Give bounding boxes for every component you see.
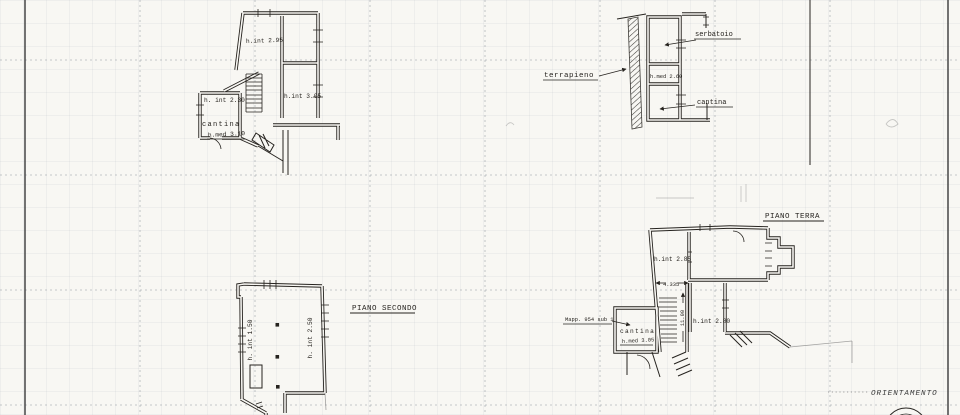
ground-exterior-steps [672, 331, 752, 376]
basement-plan: h.int 2.95 h.int 3.05 h. int 2.30 cantin… [196, 9, 340, 175]
basement-h-upper-label: h.int 2.95 [246, 37, 284, 45]
second-right-wall-extension [325, 393, 326, 410]
ground-depth-dim: 11.00 [680, 310, 686, 326]
second-h-right-label: h. int 2.50 [307, 317, 314, 358]
cellar-plan: serbatoio terrapieno cantina h.med 2.60 [543, 14, 741, 129]
second-floor-plan: PIANO SECONDO h. int 1.50 h. int 2.50 [238, 280, 417, 415]
ground-opening-ticks [688, 224, 772, 308]
ground-entrance-walls [627, 352, 660, 377]
graph-paper-grid [0, 0, 960, 415]
basement-h-annex-label: h. int 2.30 [204, 97, 245, 104]
ground-cellar-height-label: h.med 3.05 [622, 337, 655, 345]
compass-rose-icon [885, 408, 927, 415]
parcel-label: Mapp. 954 sub 1 [565, 317, 614, 323]
pencil-marks [506, 120, 898, 203]
orientation-block: ORIENTAMENTO [828, 390, 938, 415]
basement-annex-door-arc [210, 138, 221, 149]
cellar-room-label: cantina [697, 99, 726, 107]
sheet-borders [25, 0, 948, 415]
embankment-leader-line [599, 69, 626, 76]
second-pillar [276, 323, 280, 327]
basement-h-right-label: h.int 3.05 [284, 93, 321, 100]
ground-stair [659, 298, 677, 342]
second-floor-title: PIANO SECONDO [352, 305, 417, 313]
second-pillar [276, 385, 280, 389]
second-pillar [276, 355, 280, 359]
cellar-leader-line [660, 105, 695, 109]
ground-cellar-name-label: cantina [620, 328, 655, 335]
ground-boundary-extension [790, 341, 852, 363]
ground-h-mid-room-label: h.int 2.80 [693, 318, 730, 325]
floor-plan-drawing: h.int 2.95 h.int 3.05 h. int 2.30 cantin… [0, 0, 960, 415]
embankment-hatch-band [628, 17, 642, 129]
ground-room-door-arc [733, 231, 744, 242]
scanned-floor-plan-sheet: h.int 2.95 h.int 3.05 h. int 2.30 cantin… [0, 0, 960, 415]
orientation-label: ORIENTAMENTO [871, 390, 938, 398]
ground-floor-title: PIANO TERRA [765, 213, 820, 221]
second-chimney [250, 365, 262, 388]
ground-floor-plan: PIANO TERRA 4.335 11.00 h.int 2.85 h.int… [563, 213, 852, 377]
embankment-label: terrapieno [544, 72, 594, 80]
ground-entrance-door-arc [637, 355, 650, 369]
second-h-left-label: h. int 1.50 [247, 319, 254, 360]
basement-annex-name-label: cantina [202, 121, 241, 129]
cellar-h-mid-label: h.med 2.60 [650, 74, 682, 80]
tank-label: serbatoio [695, 31, 733, 39]
ground-h-left-room-label: h.int 2.85 [654, 256, 691, 263]
